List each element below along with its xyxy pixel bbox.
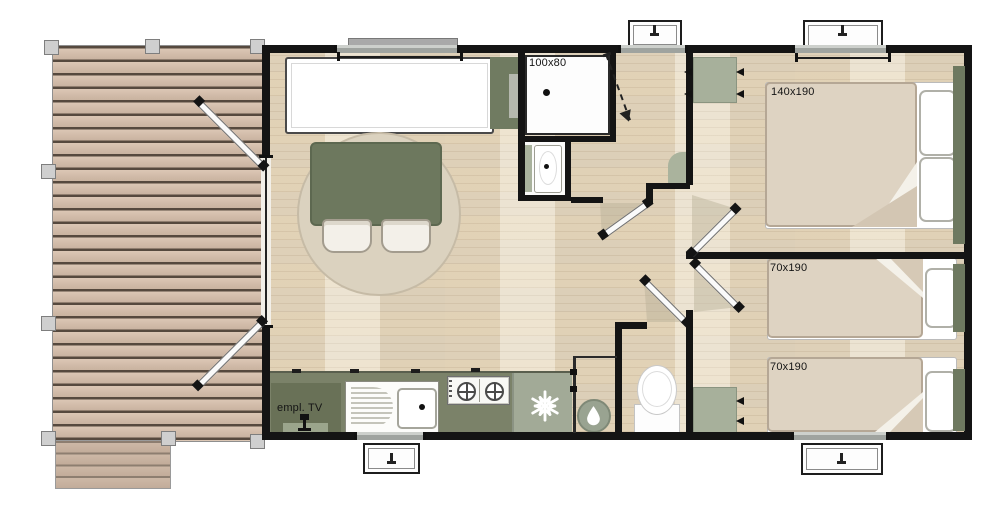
- sink-faucet-dot: [419, 404, 425, 410]
- power-outlet-icon: [684, 90, 692, 98]
- cabinet-mark: [292, 369, 301, 373]
- window-kitchen-glazing: [354, 432, 426, 440]
- bed-headboard: [953, 66, 965, 244]
- tv-spot-label: empl. TV: [277, 402, 322, 414]
- window-bedroom2-box: [801, 443, 883, 475]
- window-tick: [795, 53, 798, 62]
- window-bedroom2-glazing: [791, 432, 889, 440]
- bathroom-bottom-wall: [571, 197, 603, 203]
- shower-size-label: 100x80: [529, 57, 566, 69]
- wood-deck: [52, 45, 264, 442]
- shower-drain-icon: [543, 89, 550, 96]
- window-bathroom-glazing: [618, 45, 688, 53]
- tv-screen: [300, 414, 309, 420]
- power-outlet-icon: [736, 90, 744, 98]
- deck-post: [41, 431, 56, 446]
- tech-closet-wall: [573, 356, 617, 358]
- window-handle-icon: [649, 25, 660, 37]
- tech-closet-door: [573, 356, 576, 433]
- window-living-sill: [337, 56, 463, 58]
- bed-headboard: [953, 369, 965, 431]
- bedroom2-left-wall: [686, 310, 693, 432]
- bed-headboard: [953, 264, 965, 332]
- bathroom-left-wall: [518, 53, 525, 201]
- window-bedroom1-glazing: [792, 45, 889, 53]
- bed-pillow: [919, 157, 956, 222]
- deck-post: [41, 316, 56, 331]
- hinge-dot: [570, 369, 577, 375]
- basin-bottom-wall: [518, 195, 571, 201]
- single-bed2-size-label: 70x190: [770, 361, 807, 373]
- deck-post: [161, 431, 176, 446]
- power-outlet-icon: [736, 397, 744, 405]
- cabinet-mark: [471, 368, 480, 372]
- floorplan: empl. TV 100x80: [0, 0, 1000, 517]
- deck-steps: [55, 440, 171, 489]
- toilet-bowl: [637, 365, 677, 415]
- hinge-dot: [570, 386, 577, 392]
- double-bed-size-label: 140x190: [771, 86, 815, 98]
- window-tick: [888, 53, 891, 62]
- basin-faucet-dot: [544, 164, 549, 169]
- tv-icon: [297, 414, 312, 432]
- deck-post: [41, 164, 56, 179]
- bed-pillow: [919, 90, 956, 156]
- power-outlet-icon: [736, 68, 744, 76]
- basin-right-wall: [565, 139, 571, 201]
- wc-left-wall: [615, 322, 622, 432]
- window-handle-icon: [837, 25, 848, 37]
- hallway-top-wall: [646, 183, 690, 189]
- opening-end-cap: [259, 155, 273, 158]
- window-tick: [337, 52, 340, 61]
- deck-post: [44, 40, 59, 55]
- window-tick: [460, 52, 463, 61]
- window-kitchen-box: [363, 443, 420, 474]
- window-living-glazing: [334, 45, 460, 53]
- cabinet-mark: [350, 369, 359, 373]
- window-handle-icon: [386, 453, 397, 465]
- cabinet-mark: [411, 369, 420, 373]
- deck-post: [145, 39, 160, 54]
- power-outlet-icon: [736, 417, 744, 425]
- window-bedroom1-sill: [797, 57, 891, 59]
- bedroom-divider-wall: [686, 252, 964, 259]
- window-handle-icon: [836, 453, 847, 465]
- power-outlet-icon: [684, 68, 692, 76]
- single-bed1-size-label: 70x190: [770, 262, 807, 274]
- sliding-bay-glass: [265, 158, 267, 324]
